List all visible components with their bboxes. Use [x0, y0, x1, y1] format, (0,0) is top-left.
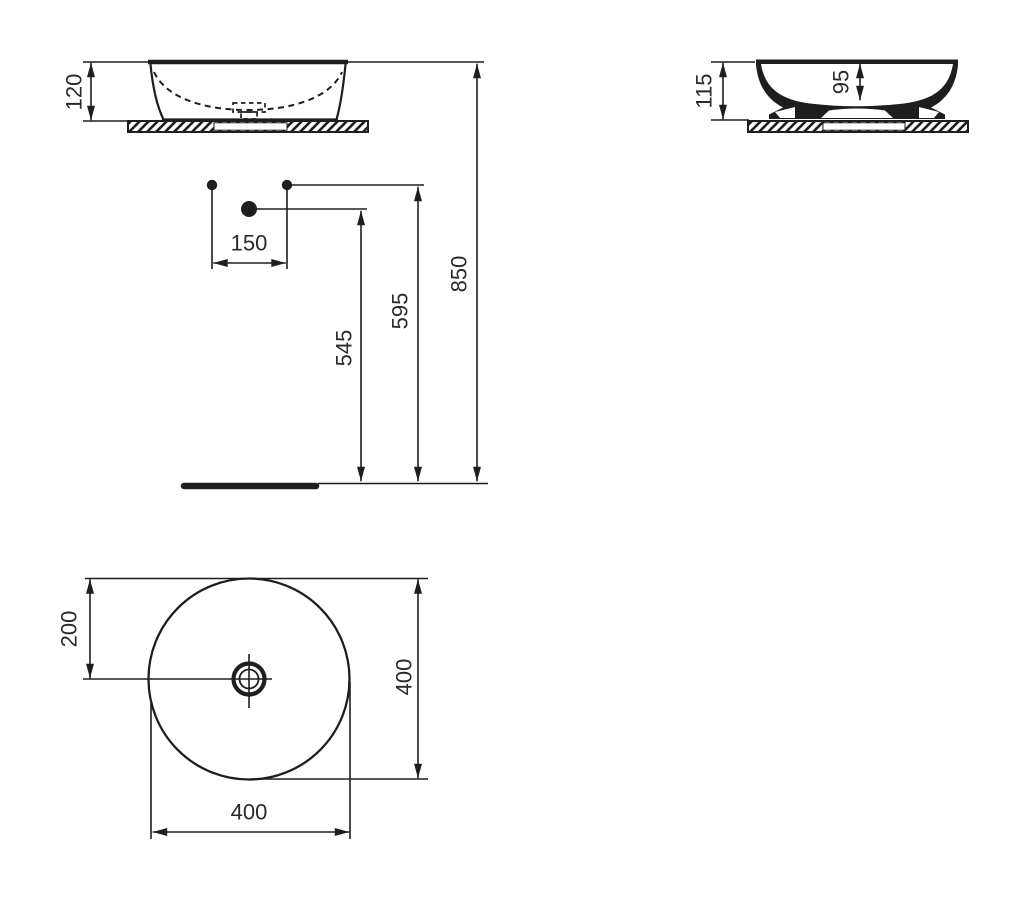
dim-label-120: 120 — [62, 74, 87, 111]
technical-drawing-page: 120 115 95 150 545 595 — [0, 0, 1024, 905]
dim-label-850: 850 — [447, 256, 472, 293]
dim-label-150: 150 — [231, 231, 268, 256]
basin-technical-drawing: 120 115 95 150 545 595 — [0, 0, 1024, 905]
dim-label-400-vertical: 400 — [392, 659, 417, 696]
side-section-view: 115 95 — [692, 60, 968, 132]
tap-hole-right — [282, 180, 292, 190]
tap-hole-left — [207, 180, 217, 190]
front-hidden-bowl-contour — [154, 72, 342, 110]
dim-label-595: 595 — [388, 293, 413, 330]
dim-label-115: 115 — [692, 73, 717, 108]
front-countertop-cutout — [214, 123, 287, 130]
front-view: 120 — [62, 62, 368, 132]
plan-view: 200 400 400 — [57, 579, 428, 840]
dim-label-545: 545 — [332, 330, 357, 367]
drain-outlet-point — [241, 201, 257, 217]
dim-label-400-horizontal: 400 — [231, 800, 268, 825]
front-basin-left-wall — [151, 65, 164, 120]
front-hidden-drain-lower — [241, 112, 257, 119]
dim-label-200: 200 — [57, 611, 82, 648]
dim-label-95: 95 — [829, 70, 854, 94]
side-countertop-cutout — [823, 123, 905, 130]
